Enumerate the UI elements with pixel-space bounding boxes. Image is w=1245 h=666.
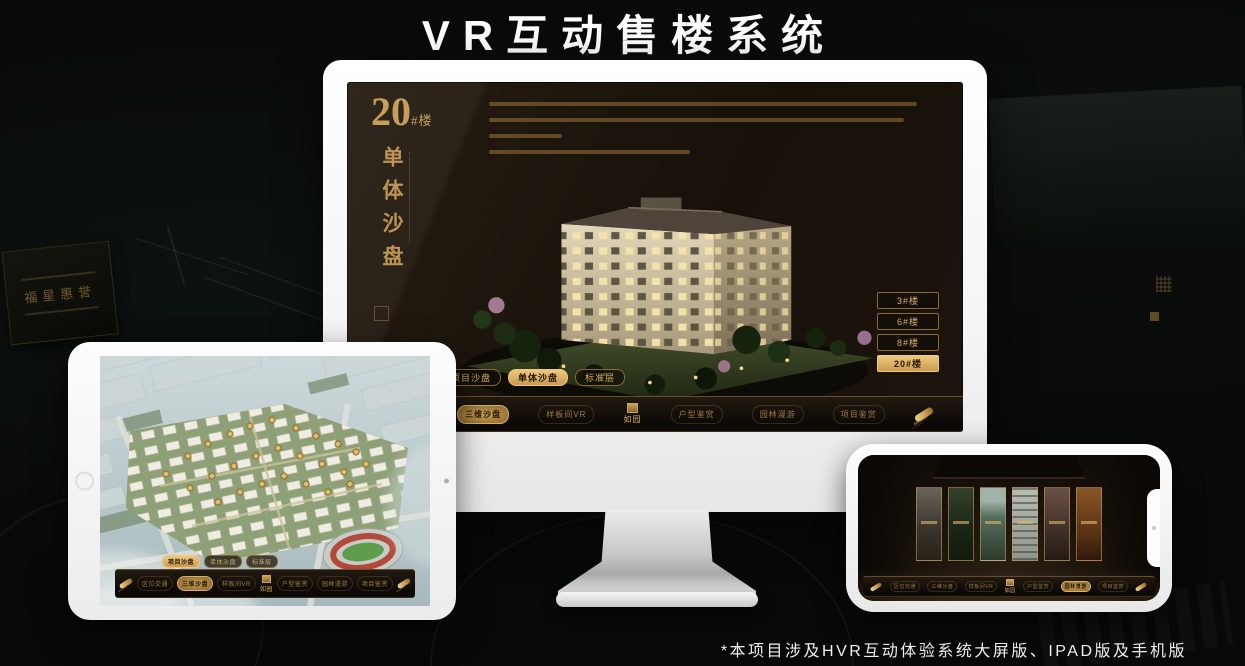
- tablet-device: 项目沙盘 单体沙盘 标准层 区位交通 三维沙盘 样板间VR 如园 户型鉴赏 园林…: [68, 342, 456, 620]
- filter-project-sandbox[interactable]: 项目沙盘: [162, 555, 200, 568]
- map-shape: [111, 225, 186, 301]
- scroll-icon[interactable]: [119, 578, 134, 590]
- filter-standard-floor[interactable]: 标准层: [246, 555, 278, 568]
- scroll-icon[interactable]: [397, 578, 412, 590]
- building-number: 20: [371, 89, 411, 134]
- ruyuan-logo: 如园: [260, 575, 273, 593]
- ruyuan-logo: 如园: [1005, 579, 1016, 594]
- gallery-panel[interactable]: [1076, 487, 1102, 561]
- promo-canvas: 福星惠誉 VR互动售楼系统 *本项目涉及HVR互动体验系统大屏版、IPAD版及手…: [0, 0, 1245, 666]
- logo-text: 如园: [260, 584, 273, 593]
- nav-item-floorplans[interactable]: 户型鉴赏: [1023, 581, 1053, 592]
- nav-item-showroom-vr[interactable]: 样板间VR: [217, 576, 256, 591]
- gallery-panel[interactable]: [1012, 487, 1038, 561]
- seal-stamp-icon: [374, 306, 389, 321]
- nav-item-garden-tour[interactable]: 园林漫游: [317, 576, 353, 591]
- scene-gallery-panels: [916, 487, 1102, 561]
- description-line: [489, 134, 562, 138]
- nav-item-showroom-vr[interactable]: 样板间VR: [538, 405, 594, 424]
- footnote-text: *本项目涉及HVR互动体验系统大屏版、IPAD版及手机版: [721, 637, 1187, 661]
- nav-item-project-gallery[interactable]: 项目鉴赏: [357, 576, 393, 591]
- tablet-screen: 项目沙盘 单体沙盘 标准层 区位交通 三维沙盘 样板间VR 如园 户型鉴赏 园林…: [100, 356, 430, 606]
- logo-text: 如园: [1005, 587, 1016, 594]
- sandbox-mode-filters: 项目沙盘 单体沙盘 标准层: [441, 369, 625, 386]
- phone-notch: [1147, 489, 1160, 567]
- description-line: [489, 102, 917, 106]
- nav-item-garden-tour[interactable]: 园林漫游: [1061, 581, 1091, 592]
- section-title-vertical: 单体沙盘: [377, 146, 407, 278]
- building-unit: #楼: [411, 113, 433, 128]
- phone-device: 区位交通 三维沙盘 样板间VR 如园 户型鉴赏 园林漫游 项目鉴赏: [846, 444, 1172, 612]
- nav-item-3d-sandbox[interactable]: 三维沙盘: [927, 581, 957, 592]
- developer-logo-glyph: [1150, 312, 1159, 321]
- plaque-text: 福星惠誉: [23, 280, 97, 306]
- tablet-camera-icon: [444, 479, 449, 484]
- filter-single-sandbox[interactable]: 单体沙盘: [508, 369, 568, 386]
- filter-standard-floor[interactable]: 标准层: [575, 369, 625, 386]
- gallery-panel[interactable]: [1044, 487, 1070, 561]
- gallery-panel[interactable]: [948, 487, 974, 561]
- nav-item-project-gallery[interactable]: 项目鉴赏: [833, 405, 885, 424]
- tablet-sandbox-filters: 项目沙盘 单体沙盘 标准层: [162, 555, 278, 568]
- logo-text: 如园: [624, 414, 642, 425]
- description-text-lines: [489, 102, 917, 154]
- nav-item-floorplans[interactable]: 户型鉴赏: [671, 405, 723, 424]
- ruyuan-logo: 如园: [624, 403, 642, 425]
- plaque-subtext-line: [21, 271, 95, 281]
- qr-code-thumbnail: [1156, 276, 1172, 292]
- description-line: [489, 150, 690, 154]
- gallery-panel[interactable]: [980, 487, 1006, 561]
- tablet-bottom-nav: 区位交通 三维沙盘 样板间VR 如园 户型鉴赏 园林漫游 项目鉴赏: [115, 569, 415, 598]
- background-photo-strip: [1000, 248, 1245, 336]
- scroll-icon[interactable]: [870, 582, 882, 592]
- gallery-panel[interactable]: [916, 487, 942, 561]
- nav-item-location[interactable]: 区位交通: [137, 576, 173, 591]
- heading-subtext-line: [409, 152, 410, 244]
- background-plaque: 福星惠誉: [1, 241, 118, 346]
- nav-item-project-gallery[interactable]: 项目鉴赏: [1098, 581, 1128, 592]
- filter-single-sandbox[interactable]: 单体沙盘: [204, 555, 242, 568]
- scroll-icon[interactable]: [1135, 582, 1147, 592]
- building-selector-group: 3#楼 6#楼 8#楼 20#楼: [877, 292, 939, 372]
- interior-ceiling-beam: [933, 455, 1085, 479]
- phone-screen: 区位交通 三维沙盘 样板间VR 如园 户型鉴赏 园林漫游 项目鉴赏: [858, 455, 1160, 601]
- description-line: [489, 118, 904, 122]
- building-button-3[interactable]: 3#楼: [877, 292, 939, 309]
- phone-bottom-nav: 区位交通 三维沙盘 样板间VR 如园 户型鉴赏 园林漫游 项目鉴赏: [863, 576, 1155, 597]
- page-title: VR互动售楼系统: [0, 2, 1245, 63]
- plaque-subtext-line: [25, 306, 99, 316]
- nav-item-showroom-vr[interactable]: 样板间VR: [965, 581, 997, 592]
- logo-mark-icon: [262, 575, 271, 583]
- building-heading: 20#楼: [371, 92, 433, 132]
- nav-item-3d-sandbox[interactable]: 三维沙盘: [457, 405, 509, 424]
- logo-mark-icon: [627, 403, 638, 413]
- scroll-icon[interactable]: [914, 406, 935, 423]
- background-photo-strip: [989, 85, 1245, 235]
- monitor-stand-base: [556, 592, 758, 607]
- building-button-8[interactable]: 8#楼: [877, 334, 939, 351]
- nav-item-3d-sandbox[interactable]: 三维沙盘: [177, 576, 213, 591]
- nav-item-location[interactable]: 区位交通: [890, 581, 920, 592]
- building-button-6[interactable]: 6#楼: [877, 313, 939, 330]
- nav-item-garden-tour[interactable]: 园林漫游: [752, 405, 804, 424]
- nav-item-floorplans[interactable]: 户型鉴赏: [277, 576, 313, 591]
- building-button-20[interactable]: 20#楼: [877, 355, 939, 372]
- tablet-home-button: [75, 472, 94, 491]
- logo-mark-icon: [1006, 579, 1014, 586]
